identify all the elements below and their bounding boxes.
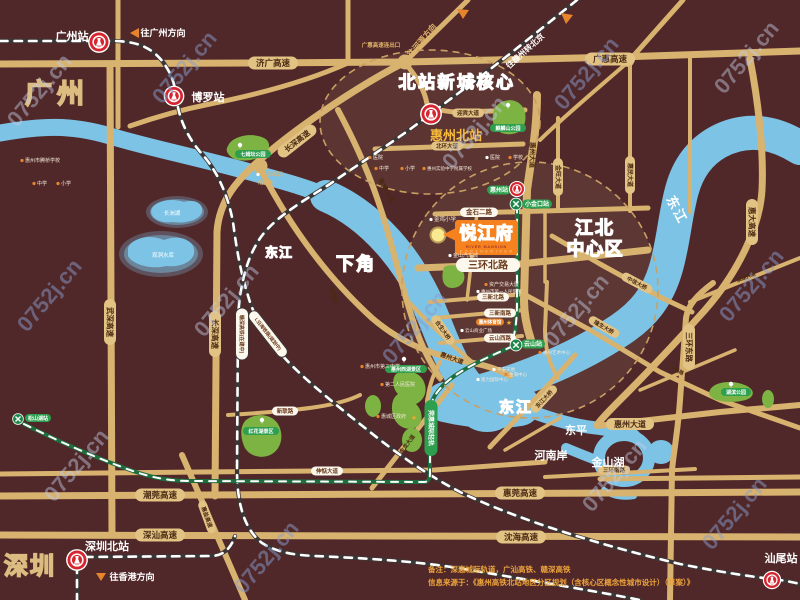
svg-text:★: ★	[411, 414, 417, 422]
svg-text:惠州大道: 惠州大道	[614, 419, 646, 429]
svg-text:松山湖站: 松山湖站	[28, 415, 48, 422]
svg-text:医院: 医院	[490, 154, 500, 161]
svg-text:汕尾站: 汕尾站	[765, 551, 798, 565]
svg-text:赣深高铁(在建中): 赣深高铁(在建中)	[238, 315, 245, 354]
svg-text:悦江府: 悦江府	[460, 223, 514, 243]
svg-text:麒麟山公园: 麒麟山公园	[495, 125, 520, 132]
svg-text:小金口站: 小金口站	[524, 200, 549, 208]
svg-text:资产交易大厦: 资产交易大厦	[489, 281, 519, 288]
svg-text:白石出口: 白石出口	[261, 170, 283, 178]
svg-text:云山商业广场: 云山商业广场	[465, 327, 492, 334]
svg-text:学校: 学校	[513, 154, 523, 161]
svg-text:三新南路: 三新南路	[489, 309, 512, 317]
svg-text:★: ★	[506, 319, 512, 327]
svg-text:三环北路: 三环北路	[468, 259, 509, 272]
svg-text:惠州市第一人民医院: 惠州市第一人民医院	[481, 288, 522, 295]
svg-text:广惠高速连出口: 广惠高速连出口	[362, 41, 401, 49]
svg-text:富力国际中心: 富力国际中心	[481, 376, 508, 383]
svg-text:博罗站: 博罗站	[192, 90, 225, 104]
svg-text:东平: 东平	[565, 423, 587, 437]
svg-text:武深高速: 武深高速	[105, 307, 115, 337]
svg-text:深圳: 深圳	[4, 553, 56, 580]
svg-text:河南岸: 河南岸	[535, 448, 568, 462]
svg-text:惠城区政府: 惠城区政府	[381, 413, 406, 420]
svg-text:RIVER MANSION: RIVER MANSION	[466, 245, 507, 249]
svg-text:金鸡小学: 金鸡小学	[434, 215, 457, 223]
svg-text:金海中心: 金海中心	[509, 371, 527, 378]
svg-text:金旺大道: 金旺大道	[554, 164, 562, 189]
svg-text:云山站: 云山站	[524, 340, 542, 348]
svg-text:第二人民医院: 第二人民医院	[385, 381, 415, 388]
svg-text:小学: 小学	[61, 180, 71, 187]
svg-text:湖滨公园: 湖滨公园	[726, 389, 746, 396]
svg-text:云山西路: 云山西路	[489, 334, 512, 342]
svg-text:惠民大道: 惠民大道	[626, 163, 634, 187]
svg-text:惠大高速: 惠大高速	[747, 207, 757, 237]
svg-text:东江: 东江	[265, 245, 293, 260]
svg-text:（在建中）: （在建中）	[255, 179, 278, 186]
svg-text:医院: 医院	[373, 154, 383, 161]
svg-text:信息来源于：《惠州高铁北站地区分区规划（含核心区概念性城市设: 信息来源于：《惠州高铁北站地区分区规划（含核心区概念性城市设计）（草案）》	[428, 577, 694, 587]
svg-text:中心区: 中心区	[567, 238, 624, 259]
svg-text:惠莞高速: 惠莞高速	[503, 488, 538, 498]
svg-text:金石二路: 金石二路	[465, 207, 493, 216]
svg-text:伸惦大道: 伸惦大道	[315, 467, 339, 475]
svg-text:济广高速: 济广高速	[256, 58, 291, 68]
svg-text:中学: 中学	[37, 180, 47, 187]
svg-text:潮莞高速: 潮莞高速	[142, 490, 178, 500]
svg-text:下角: 下角	[336, 253, 376, 274]
svg-text:长洲湖: 长洲湖	[164, 209, 181, 217]
svg-text:往香港方向: 往香港方向	[109, 571, 154, 582]
svg-text:金山汽车城: 金山汽车城	[453, 252, 478, 259]
svg-text:中学: 中学	[379, 165, 389, 172]
svg-text:东江: 东江	[499, 398, 533, 416]
svg-text:惠州站: 惠州站	[490, 186, 508, 194]
svg-text:三环东路: 三环东路	[684, 332, 694, 362]
svg-text:小学: 小学	[405, 165, 415, 172]
svg-text:惠州市腾桥学校: 惠州市腾桥学校	[25, 157, 60, 164]
svg-text:江北: 江北	[575, 218, 615, 238]
svg-text:往广州方向: 往广州方向	[140, 27, 185, 38]
svg-text:莞惠城际轻轨: 莞惠城际轻轨	[427, 409, 435, 446]
svg-text:惠州体育馆: 惠州体育馆	[479, 319, 502, 326]
svg-text:三新北路: 三新北路	[482, 293, 505, 301]
svg-text:新联路: 新联路	[277, 407, 294, 415]
svg-text:北站新城核心: 北站新城核心	[399, 72, 516, 92]
svg-text:广州站: 广州站	[56, 29, 89, 43]
svg-text:七姆坛公园: 七姆坛公园	[240, 151, 265, 158]
svg-text:红花湖景区: 红花湖景区	[248, 428, 273, 435]
svg-text:备注：深惠城际轨道，广汕高铁、赣深高铁: 备注：深惠城际轨道，广汕高铁、赣深高铁	[427, 564, 571, 574]
svg-text:观洞水库: 观洞水库	[152, 251, 175, 259]
svg-text:深圳北站: 深圳北站	[85, 539, 129, 553]
svg-text:沈海高速: 沈海高速	[504, 532, 539, 542]
svg-text:深汕高速: 深汕高速	[143, 530, 178, 540]
svg-text:惠州大道: 惠州大道	[529, 142, 538, 169]
